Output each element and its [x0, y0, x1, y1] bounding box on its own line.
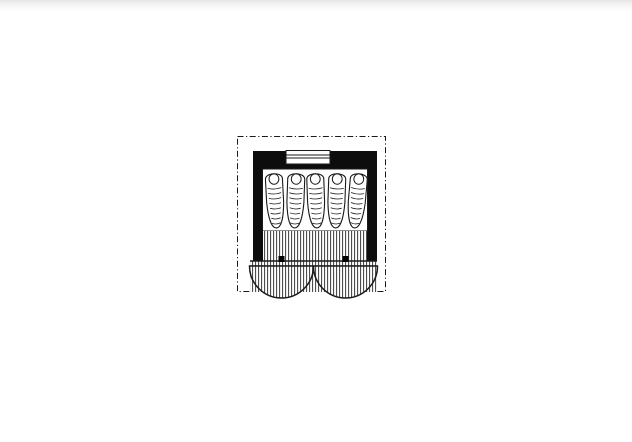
window-symbol [286, 151, 330, 165]
door-hinge-block [279, 256, 285, 262]
page-canvas [0, 0, 632, 442]
door-hinge-block [343, 256, 349, 262]
floor-plan-svg [0, 0, 632, 442]
door-swing-arc [250, 266, 314, 298]
door-swing-arc [314, 266, 378, 298]
